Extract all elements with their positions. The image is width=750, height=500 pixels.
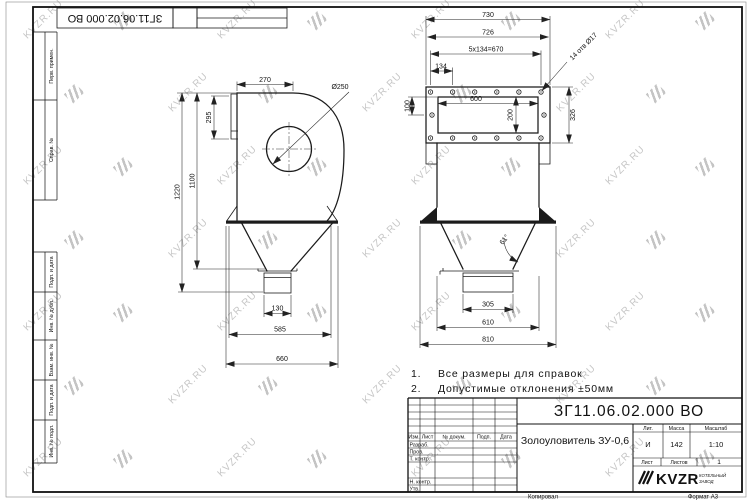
kvzr-logo-text: KVZR: [656, 471, 699, 488]
left-view: 270 295 1220 1100 Ø250 130: [175, 77, 350, 368]
mass-value: 142: [670, 440, 683, 449]
hopper-flange-bar: [420, 221, 556, 224]
drawing-sheet: KVZR.RUKVZR.RUKVZR.RUKVZR.RUKVZR.RUKVZR.…: [0, 0, 750, 500]
col-izm: Изм.: [408, 435, 419, 441]
row-utv: Утв.: [410, 487, 420, 493]
outlet-box: [463, 273, 513, 292]
dim-585: 585: [274, 327, 286, 334]
dim-270: 270: [259, 77, 271, 84]
note-1-text: Все размеры для справок: [438, 368, 583, 380]
flange-tab-right: [539, 143, 550, 164]
row-nkontr: Н. контр.: [410, 480, 432, 486]
dim-810: 810: [482, 337, 494, 344]
scale-value: 1:10: [709, 440, 724, 449]
margin-label: Взам. инв. №: [49, 343, 55, 376]
outlet-box: [264, 273, 291, 293]
margin-label: Инв. № подл.: [49, 425, 55, 458]
margin-label: Подп. и дата: [49, 256, 55, 287]
margin-label: Перв. примен.: [49, 48, 55, 83]
note-2-text: Допустимые отклонения ±50мм: [438, 383, 614, 395]
title-designation: ЗГ11.06.02.000 ВО: [554, 403, 704, 420]
dim-dia250: Ø250: [331, 84, 348, 91]
kvzr-logo: KVZR КОТЕЛЬНЫЙ ЗАВОД: [639, 471, 727, 488]
mass-label: Масса: [669, 426, 685, 432]
dim-295: 295: [206, 112, 213, 124]
right-view-dimensions: 730 726 5x134=670 134 14 отв Ø17 100: [405, 12, 600, 348]
col-doc: № докум.: [442, 435, 465, 441]
hopper-flange-bar: [226, 221, 338, 224]
kvzr-logo-sub1: КОТЕЛЬНЫЙ: [699, 473, 727, 478]
sheets-value: 1: [717, 459, 721, 466]
format-label: Формат А3: [688, 495, 719, 500]
dim-660: 660: [276, 356, 288, 363]
scale-label: Масштаб: [705, 426, 728, 432]
sheets-label: Листов: [670, 460, 687, 466]
note-1-num: 1.: [411, 368, 421, 380]
dim-1100: 1100: [190, 173, 197, 188]
dim-326: 326: [570, 109, 577, 121]
note-2-num: 2.: [411, 383, 421, 395]
row-razrab: Разраб.: [410, 443, 429, 449]
notes: 1. Все размеры для справок 2. Допустимые…: [411, 368, 614, 395]
row-prov: Пров.: [410, 450, 424, 456]
flange-opening: [438, 97, 538, 133]
drawing-svg: ЗГ11.06.02.000 ВО Перв. примен. Справ. №…: [0, 0, 750, 500]
dim-134: 134: [435, 64, 447, 71]
kvzr-logo-sub2: ЗАВОД: [699, 479, 714, 484]
lit-value: И: [645, 440, 650, 449]
margin-label: Подп. и дата: [49, 384, 55, 415]
lit-label: Лит.: [643, 426, 653, 432]
gusset-right: [539, 207, 555, 221]
gusset-left: [421, 207, 437, 221]
dim-angle-61: 61°: [498, 233, 511, 246]
dim-730: 730: [482, 12, 494, 19]
row-tkontr: Т. контр.: [410, 457, 431, 463]
margin-label: Инв. № дубл.: [49, 300, 55, 333]
right-view: 730 726 5x134=670 134 14 отв Ø17 100: [405, 12, 600, 348]
sheet-frame: [6, 2, 746, 497]
title-name: Золоуловитель ЗУ-0,6: [521, 435, 629, 447]
dim-670: 5x134=670: [469, 47, 504, 54]
sheet-label: Лист: [641, 460, 653, 466]
col-list: Лист: [422, 435, 434, 441]
dim-200: 200: [508, 109, 515, 121]
copied-label: Копировал: [528, 495, 559, 500]
col-podp: Подп.: [477, 435, 491, 441]
kvzr-logo-icon: [639, 471, 653, 484]
corner-designation-text: ЗГ11.06.02.000 ВО: [67, 12, 162, 24]
left-margin-labels: Перв. примен. Справ. № Подп. и дата Инв.…: [49, 48, 55, 457]
flange-tab-left: [426, 143, 437, 164]
dim-610: 610: [482, 320, 494, 327]
dim-305: 305: [482, 302, 494, 309]
col-data: Дата: [500, 435, 512, 441]
dim-holes-note: 14 отв Ø17: [569, 32, 599, 62]
dim-600: 600: [470, 96, 482, 103]
margin-label: Справ. №: [49, 138, 55, 162]
dim-100: 100: [405, 100, 412, 112]
flange-plate: [426, 87, 550, 143]
corner-designation-block: ЗГ11.06.02.000 ВО: [57, 8, 287, 28]
title-block: ЗГ11.06.02.000 ВО Золоуловитель ЗУ-0,6 Л…: [408, 398, 742, 493]
dim-726: 726: [482, 30, 494, 37]
dim-1220: 1220: [175, 184, 182, 200]
dim-130: 130: [272, 306, 284, 313]
